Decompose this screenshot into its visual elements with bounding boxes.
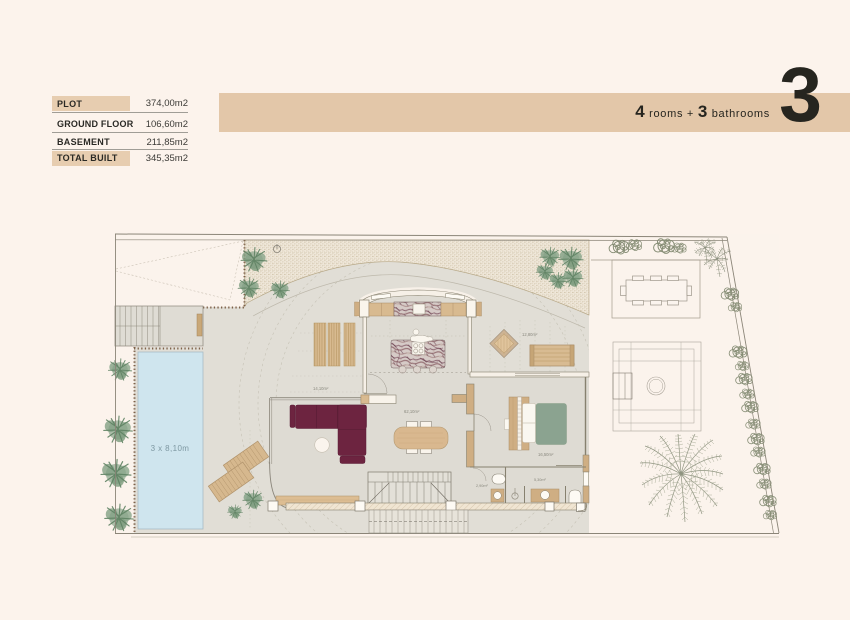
svg-text:3 x 8,10m: 3 x 8,10m bbox=[151, 444, 190, 453]
svg-text:2,90m²: 2,90m² bbox=[476, 484, 489, 488]
svg-text:14,10m²: 14,10m² bbox=[313, 386, 329, 391]
svg-text:62,10m²: 62,10m² bbox=[404, 409, 420, 414]
svg-text:12,80m²: 12,80m² bbox=[522, 332, 538, 337]
svg-text:16,50m²: 16,50m² bbox=[538, 452, 554, 457]
svg-text:5,30m²: 5,30m² bbox=[534, 478, 547, 482]
